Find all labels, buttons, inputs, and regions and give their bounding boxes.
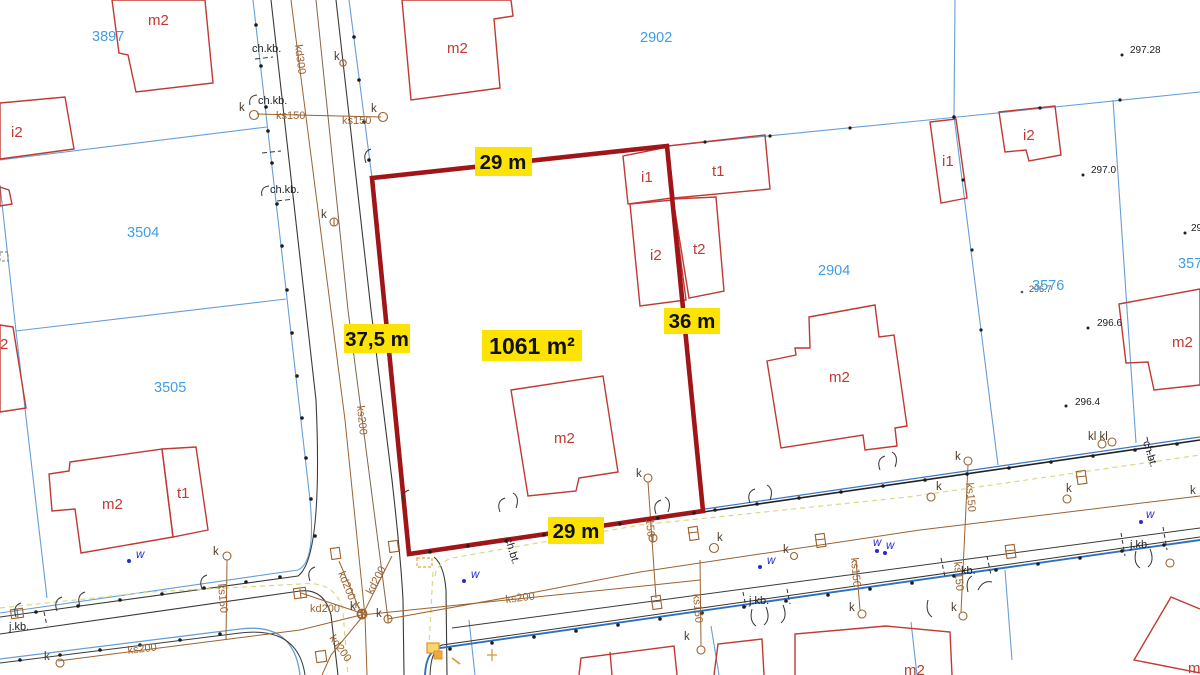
- svg-text:k: k: [1066, 483, 1072, 495]
- svg-text:k: k: [684, 631, 690, 643]
- svg-text:w: w: [136, 549, 145, 561]
- svg-text:i2: i2: [650, 247, 662, 264]
- svg-text:w: w: [767, 555, 776, 567]
- svg-text:w: w: [471, 569, 480, 581]
- svg-text:3505: 3505: [154, 380, 186, 396]
- svg-text:ch.kb.: ch.kb.: [252, 43, 281, 55]
- svg-text:i2: i2: [11, 124, 23, 141]
- svg-text:ks150: ks150: [963, 482, 978, 512]
- svg-text:1061 m²: 1061 m²: [489, 333, 575, 359]
- svg-text:w: w: [1146, 509, 1155, 521]
- svg-text:j.kb.: j.kb.: [1129, 539, 1150, 551]
- svg-text:i1: i1: [641, 169, 653, 186]
- svg-text:t2: t2: [693, 241, 706, 258]
- svg-text:i1: i1: [942, 153, 954, 170]
- svg-text:kd200: kd200: [310, 603, 340, 615]
- svg-text:k: k: [1190, 485, 1196, 497]
- svg-text:ks150: ks150: [276, 110, 305, 122]
- svg-text:2904: 2904: [818, 263, 850, 279]
- svg-text:k: k: [955, 451, 961, 463]
- svg-text:296.6: 296.6: [1097, 318, 1122, 329]
- svg-text:w: w: [873, 537, 882, 549]
- svg-text:t1: t1: [177, 485, 190, 502]
- svg-text:k: k: [717, 532, 723, 544]
- svg-text:29 m: 29 m: [480, 151, 527, 174]
- svg-text:37,5 m: 37,5 m: [345, 328, 409, 351]
- svg-text:-k: -k: [351, 599, 361, 611]
- svg-text:k: k: [334, 51, 340, 63]
- svg-text:k: k: [936, 481, 942, 493]
- svg-text:36 m: 36 m: [669, 310, 716, 333]
- svg-text:m2: m2: [904, 662, 925, 675]
- svg-text:k: k: [849, 602, 855, 614]
- svg-text:29 m: 29 m: [553, 520, 600, 543]
- svg-text:k: k: [951, 602, 957, 614]
- svg-text:k: k: [636, 468, 642, 480]
- svg-text:296.4: 296.4: [1075, 397, 1100, 408]
- svg-text:29: 29: [1191, 223, 1200, 234]
- svg-text:kl kl: kl kl: [1088, 431, 1108, 443]
- svg-text:ks150: ks150: [690, 593, 705, 623]
- svg-text:2: 2: [0, 336, 8, 353]
- svg-text:j.kb.: j.kb.: [8, 621, 29, 633]
- svg-text:t1: t1: [712, 163, 725, 180]
- svg-text:357: 357: [1178, 256, 1200, 272]
- svg-text:3897: 3897: [92, 29, 124, 45]
- svg-text:k: k: [376, 608, 382, 620]
- svg-text:297.0: 297.0: [1091, 165, 1116, 176]
- svg-text:m2: m2: [1188, 660, 1200, 675]
- svg-text:m2: m2: [102, 496, 123, 513]
- svg-text:j.kb.: j.kb.: [748, 595, 769, 607]
- svg-text:3504: 3504: [127, 225, 159, 241]
- svg-text:i2: i2: [1023, 127, 1035, 144]
- svg-text:k: k: [371, 103, 377, 115]
- svg-text:ks150: ks150: [342, 115, 371, 127]
- svg-text:k: k: [783, 544, 789, 556]
- svg-text:k: k: [239, 102, 245, 114]
- svg-text:w: w: [886, 540, 895, 552]
- svg-text:2902: 2902: [640, 30, 672, 46]
- svg-text:k: k: [44, 651, 50, 663]
- svg-text:k: k: [321, 209, 327, 221]
- svg-text:m2: m2: [554, 430, 575, 447]
- svg-text:m2: m2: [447, 40, 468, 57]
- svg-text:ch.kb.: ch.kb.: [270, 184, 299, 196]
- svg-text:150: 150: [643, 518, 657, 537]
- svg-text:3576: 3576: [1032, 278, 1064, 294]
- svg-text:297.28: 297.28: [1130, 45, 1161, 56]
- svg-text:m2: m2: [148, 12, 169, 29]
- svg-text:m2: m2: [829, 369, 850, 386]
- svg-text:ks150: ks150: [215, 583, 230, 613]
- svg-text:ch.kb.: ch.kb.: [258, 95, 287, 107]
- svg-text:ks150: ks150: [951, 561, 966, 591]
- svg-text:ks150: ks150: [848, 557, 863, 587]
- svg-text:m2: m2: [1172, 334, 1193, 351]
- svg-text:k: k: [213, 546, 219, 558]
